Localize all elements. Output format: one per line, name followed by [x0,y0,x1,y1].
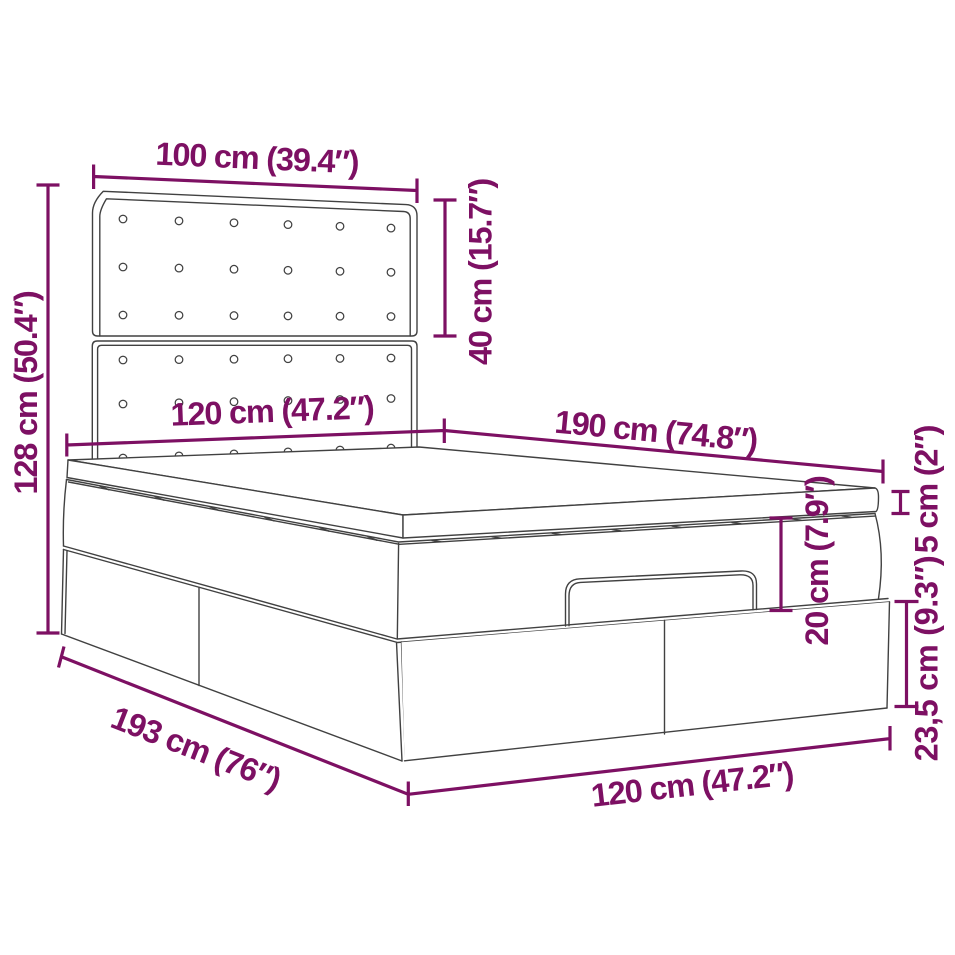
svg-text:40 cm (15.7″): 40 cm (15.7″) [463,179,499,365]
svg-text:120 cm (47.2″): 120 cm (47.2″) [170,389,374,432]
svg-text:128 cm (50.4″): 128 cm (50.4″) [8,291,44,494]
svg-text:193 cm (76″): 193 cm (76″) [106,699,285,797]
svg-text:23,5 cm (9.3″): 23,5 cm (9.3″) [909,556,945,762]
svg-text:20 cm (7.9″): 20 cm (7.9″) [799,476,835,646]
svg-text:5 cm (2″): 5 cm (2″) [909,425,945,553]
svg-text:100 cm (39.4″): 100 cm (39.4″) [155,136,360,181]
svg-text:120 cm (47.2″): 120 cm (47.2″) [589,755,795,814]
